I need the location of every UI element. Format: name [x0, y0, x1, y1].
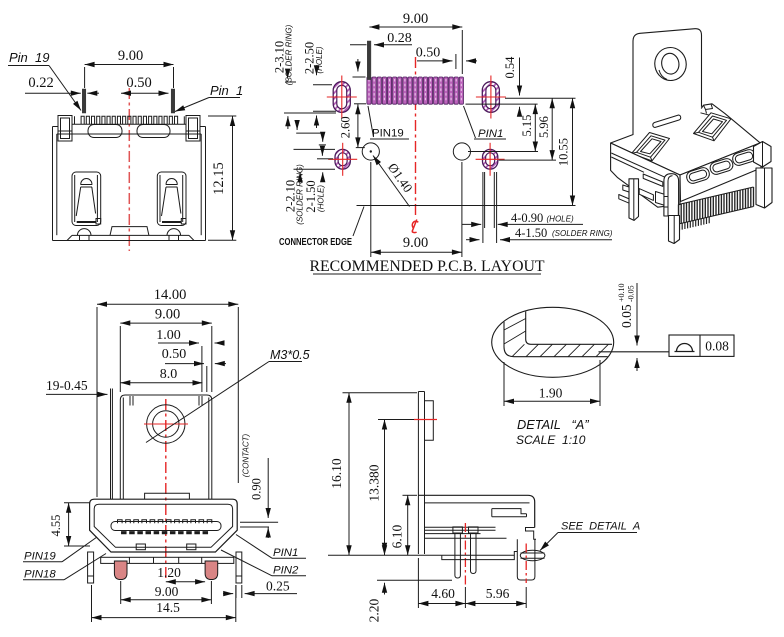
svg-text:0.50: 0.50: [162, 347, 187, 362]
svg-text:(HOLE): (HOLE): [317, 185, 326, 212]
svg-text:(SOLDER RING): (SOLDER RING): [552, 229, 613, 238]
svg-text:1.20: 1.20: [157, 565, 181, 580]
svg-text:(HOLE): (HOLE): [315, 46, 324, 73]
svg-text:0.50: 0.50: [126, 75, 151, 91]
svg-text:PIN19: PIN19: [24, 551, 56, 563]
svg-text:14.5: 14.5: [156, 600, 180, 615]
svg-text:(SOLDER RING): (SOLDER RING): [285, 24, 294, 85]
svg-text:14.00: 14.00: [154, 287, 187, 303]
svg-text:1.00: 1.00: [156, 328, 181, 343]
svg-text:PIN19: PIN19: [372, 128, 404, 140]
svg-text:(HOLE): (HOLE): [547, 215, 574, 224]
svg-text:9.00: 9.00: [155, 307, 180, 323]
svg-text:Pin 1: Pin 1: [210, 83, 243, 98]
svg-text:4-0.90: 4-0.90: [511, 211, 543, 225]
svg-text:PIN1: PIN1: [478, 128, 503, 140]
svg-text:0.25: 0.25: [266, 579, 290, 594]
svg-text:PIN2: PIN2: [273, 565, 299, 577]
svg-text:9.00: 9.00: [403, 235, 428, 251]
svg-text:RECOMMENDED P.C.B. LAYOUT: RECOMMENDED P.C.B. LAYOUT: [309, 258, 544, 275]
svg-text:1.90: 1.90: [539, 386, 563, 401]
svg-text:0.90: 0.90: [249, 478, 263, 500]
svg-text:PIN1: PIN1: [273, 547, 298, 559]
svg-text:CONNECTOR EDGE: CONNECTOR EDGE: [279, 236, 352, 248]
svg-text:PIN18: PIN18: [24, 569, 56, 581]
svg-text:Pin 19: Pin 19: [9, 50, 49, 65]
svg-text:5.96: 5.96: [537, 116, 551, 138]
svg-text:9.00: 9.00: [155, 584, 179, 599]
svg-text:(CONTACT): (CONTACT): [242, 433, 251, 477]
svg-text:8.0: 8.0: [160, 367, 178, 382]
svg-text:SCALE 1:10: SCALE 1:10: [516, 433, 586, 447]
svg-text:5.15: 5.15: [520, 115, 534, 137]
svg-text:4-1.50: 4-1.50: [515, 226, 547, 240]
svg-text:2.60: 2.60: [338, 116, 352, 138]
svg-text:0.05: 0.05: [619, 304, 634, 328]
svg-text:10.55: 10.55: [556, 138, 570, 166]
svg-text:6.10: 6.10: [390, 524, 405, 548]
svg-text:0.28: 0.28: [387, 31, 412, 46]
svg-text:12.15: 12.15: [211, 162, 227, 195]
svg-text:4.60: 4.60: [431, 586, 455, 601]
svg-text:0.08: 0.08: [705, 339, 729, 354]
svg-text:5.96: 5.96: [486, 586, 510, 601]
svg-text:M3*0.5: M3*0.5: [270, 348, 310, 362]
svg-text:2.20: 2.20: [367, 598, 382, 622]
svg-text:13.380: 13.380: [367, 464, 382, 501]
svg-text:-0.05: -0.05: [627, 285, 636, 302]
svg-text:+0.10: +0.10: [617, 283, 626, 302]
svg-text:0.50: 0.50: [416, 46, 441, 61]
svg-text:9.00: 9.00: [403, 11, 428, 27]
svg-text:DETAIL “A”: DETAIL “A”: [517, 417, 589, 432]
svg-text:0.22: 0.22: [28, 75, 53, 91]
svg-text:16.10: 16.10: [329, 458, 344, 489]
svg-text:4.55: 4.55: [49, 515, 63, 537]
svg-text:0.54: 0.54: [503, 56, 517, 79]
svg-text:SEE DETAIL A: SEE DETAIL A: [561, 521, 640, 533]
svg-text:9.00: 9.00: [118, 48, 143, 64]
svg-text:19-0.45: 19-0.45: [46, 378, 88, 393]
